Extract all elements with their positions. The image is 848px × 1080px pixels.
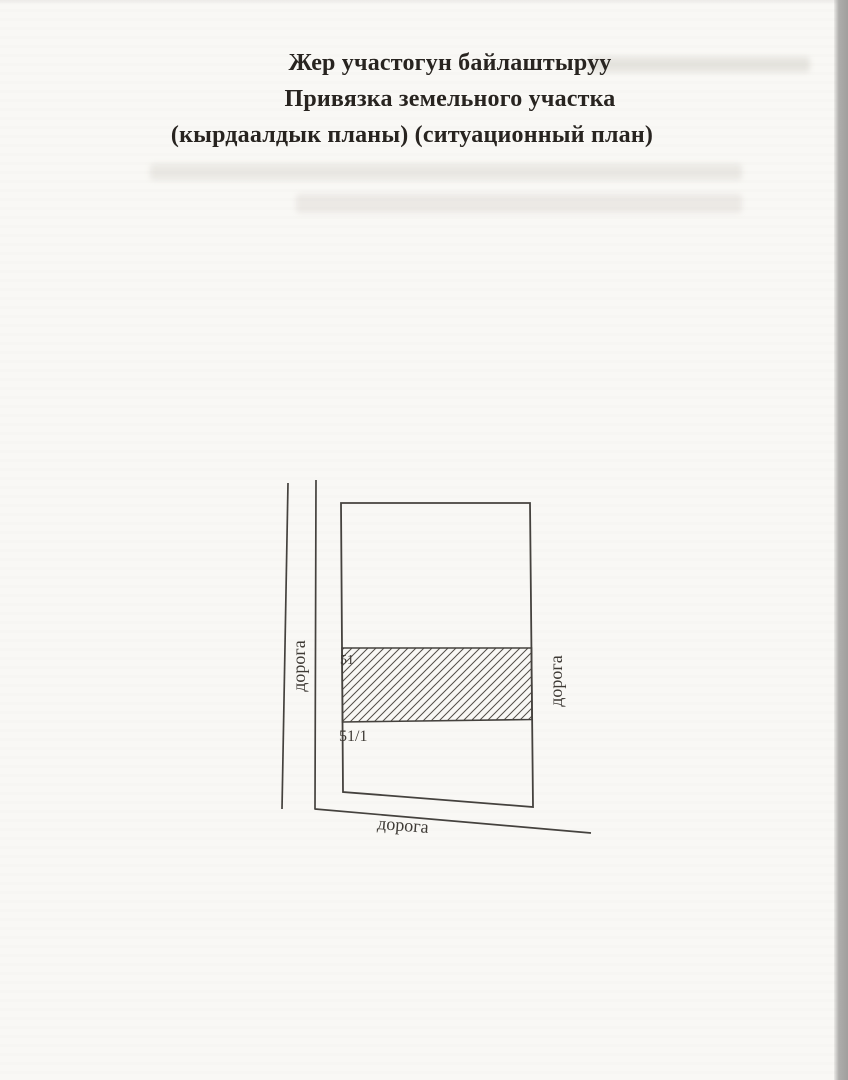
road-label-left: дорога bbox=[289, 640, 309, 692]
road-label-bottom: дорога bbox=[377, 813, 430, 837]
parcel-51-hatched-area bbox=[342, 648, 532, 722]
document-page: Жер участогун байлаштыруу Привязка земел… bbox=[0, 0, 848, 1080]
parcel-label-51-1: 51/1 bbox=[339, 728, 367, 745]
parcel-label-51: 51 bbox=[340, 653, 354, 668]
scan-edge-strip bbox=[834, 0, 848, 1080]
road-label-right: дорога bbox=[546, 655, 566, 707]
situational-plan-diagram: 51 51/1 дорога дорога дорога bbox=[0, 0, 848, 1080]
road-line-left-outer bbox=[282, 483, 288, 809]
